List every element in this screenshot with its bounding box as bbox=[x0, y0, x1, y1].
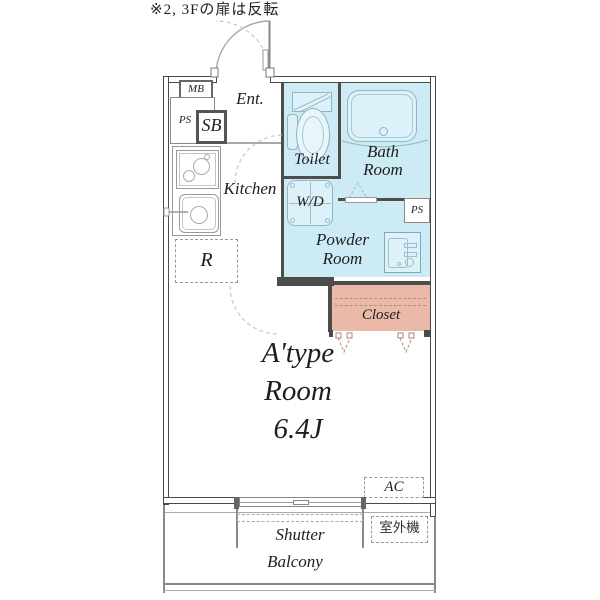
toilet-label: Toilet bbox=[286, 151, 338, 169]
floor-plan: ※2, 3Fの扉は反転 MB PS SB PS bbox=[0, 0, 600, 600]
basin-faucet bbox=[404, 243, 417, 248]
bath-room-label: Bath Room bbox=[352, 143, 414, 179]
closet-shelf-line bbox=[335, 305, 426, 306]
refrigerator-label: R bbox=[176, 249, 237, 271]
balcony-bottom-edge-inner bbox=[163, 590, 436, 591]
main-room-label-line2: Room bbox=[264, 375, 332, 407]
wall-toilet-wd bbox=[281, 176, 341, 179]
basin-faucet bbox=[404, 252, 417, 257]
shutter-track bbox=[237, 514, 363, 522]
bathtub-drain bbox=[379, 127, 388, 136]
bathtub bbox=[347, 90, 417, 142]
meter-box-label: MB bbox=[181, 83, 211, 95]
entrance-label: Ent. bbox=[228, 90, 272, 109]
main-room-label: A'type Room 6.4J bbox=[185, 334, 411, 448]
wall-closet-top bbox=[331, 281, 430, 285]
washer-corner-dot bbox=[325, 183, 330, 188]
entrance-door-panel bbox=[263, 50, 268, 70]
wall-powder-bottom bbox=[277, 277, 334, 286]
ac-box: AC bbox=[364, 477, 424, 498]
powder-room-label-line1: Powder bbox=[316, 230, 369, 249]
outer-wall-top-right bbox=[270, 76, 436, 83]
entrance-door-swing-arc bbox=[216, 21, 270, 75]
balcony-window bbox=[239, 497, 363, 507]
kitchen-sink bbox=[179, 194, 219, 233]
closet-label: Closet bbox=[348, 307, 414, 324]
outer-wall-bottom-right bbox=[363, 497, 436, 504]
balcony-left-edge bbox=[163, 505, 165, 593]
shoe-box-label: SB bbox=[199, 116, 224, 136]
basin-drain bbox=[405, 258, 414, 267]
stove-burner-small bbox=[183, 170, 195, 182]
wall-toilet-bath bbox=[338, 83, 341, 178]
main-room-label-line1: A'type bbox=[262, 337, 334, 369]
bath-room-label-line1: Bath bbox=[367, 142, 399, 161]
entrance-door-reversed-arc bbox=[216, 21, 270, 75]
balcony-bottom-edge bbox=[163, 583, 436, 585]
window-meeting-stile bbox=[293, 500, 309, 505]
entrance-step-line bbox=[227, 142, 281, 144]
toilet-bowl-inner bbox=[302, 116, 324, 154]
wash-basin bbox=[384, 232, 421, 273]
outer-wall-right bbox=[430, 76, 436, 517]
outer-wall-bottom-left bbox=[163, 497, 239, 504]
washer-corner-dot bbox=[290, 218, 295, 223]
wall-ent-toilet bbox=[281, 83, 284, 178]
pipe-space-right-label: PS bbox=[405, 204, 429, 216]
powder-room-label-line2: Room bbox=[323, 249, 363, 268]
kitchen-label: Kitchen bbox=[220, 180, 280, 199]
refrigerator-space: R bbox=[175, 239, 238, 283]
balcony-top-edge bbox=[165, 512, 434, 513]
closet-shelf-line bbox=[335, 298, 426, 299]
wall-closet-left bbox=[328, 281, 332, 332]
stove bbox=[176, 150, 219, 189]
balcony-right-edge bbox=[434, 513, 436, 593]
basin-knob bbox=[397, 262, 401, 266]
washer-corner-dot bbox=[290, 183, 295, 188]
stove-burner-large bbox=[193, 158, 210, 175]
powder-room-label: Powder Room bbox=[305, 230, 380, 268]
floor-note-text: ※2, 3Fの扉は反転 bbox=[150, 2, 330, 19]
balcony-label: Balcony bbox=[250, 553, 340, 572]
washer-dryer-label: W/D bbox=[291, 194, 329, 211]
main-room-door-swing-arc bbox=[230, 286, 278, 334]
pipe-space-left-label: PS bbox=[173, 114, 197, 126]
outdoor-unit-label: 室外機 bbox=[372, 521, 427, 536]
stove-knob bbox=[204, 154, 210, 160]
shoe-box: SB bbox=[196, 110, 227, 144]
wall-powder-left bbox=[281, 178, 284, 277]
bath-door-sill bbox=[345, 197, 377, 203]
sink-drain bbox=[190, 206, 208, 224]
shutter-label: Shutter bbox=[255, 526, 345, 545]
pipe-space-right-box: PS bbox=[404, 198, 430, 223]
outdoor-unit-box: 室外機 bbox=[371, 516, 428, 543]
ac-label: AC bbox=[365, 479, 423, 496]
washer-corner-dot bbox=[325, 218, 330, 223]
outer-wall-left bbox=[163, 76, 169, 505]
bath-room-label-line2: Room bbox=[363, 160, 403, 179]
main-room-label-line3: 6.4J bbox=[273, 413, 322, 445]
